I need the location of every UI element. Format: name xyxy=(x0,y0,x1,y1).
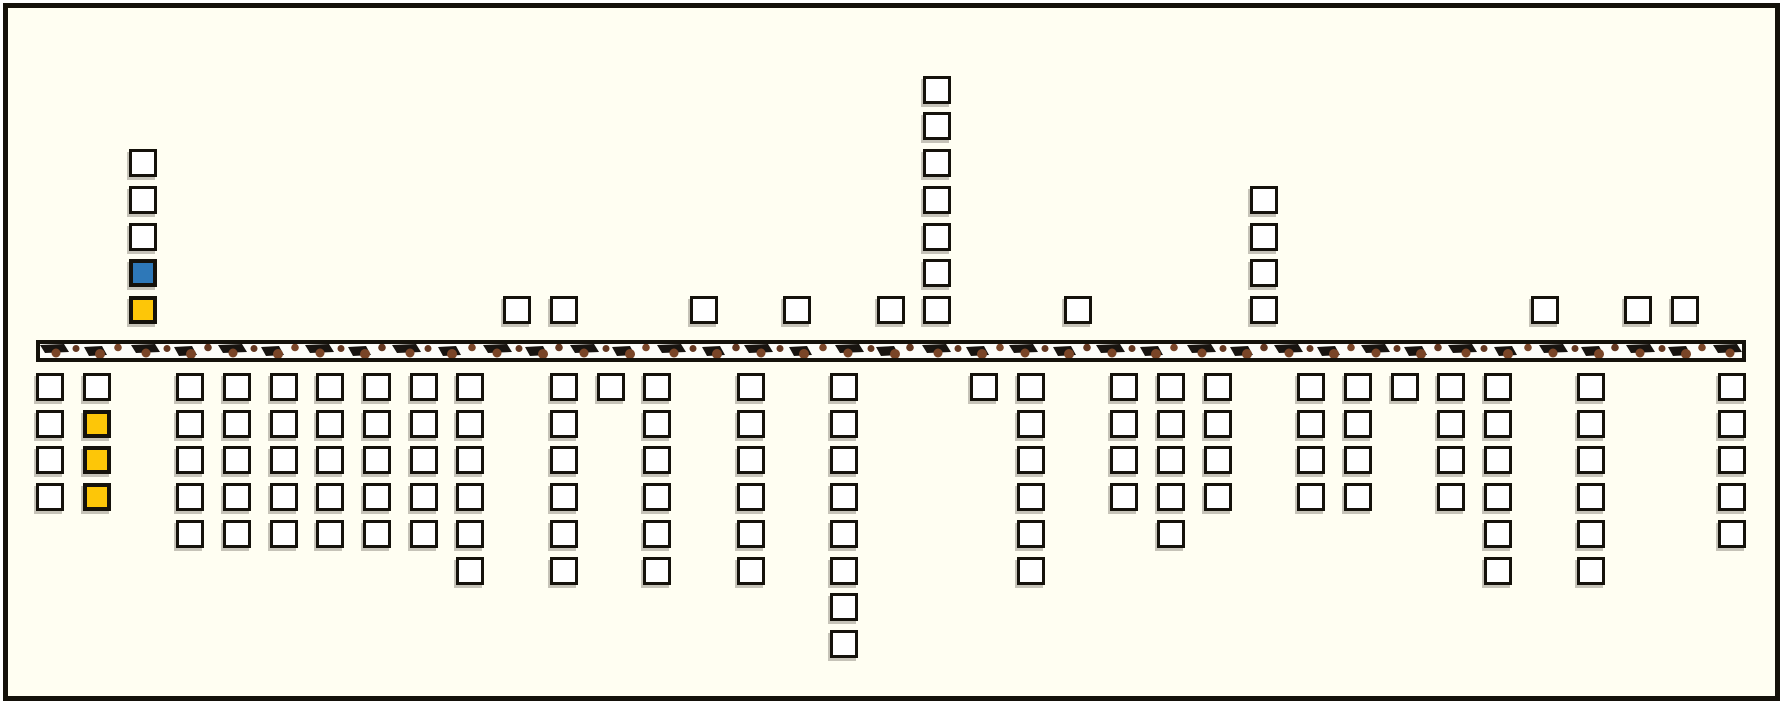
block-white[interactable] xyxy=(176,520,204,548)
block-white[interactable] xyxy=(1577,557,1605,585)
block-white[interactable] xyxy=(1250,259,1278,287)
block-white[interactable] xyxy=(923,259,951,287)
block-white[interactable] xyxy=(36,483,64,511)
block-white[interactable] xyxy=(1017,520,1045,548)
block-white[interactable] xyxy=(830,630,858,658)
block-white[interactable] xyxy=(737,446,765,474)
block-white[interactable] xyxy=(830,446,858,474)
block-white[interactable] xyxy=(36,410,64,438)
block-white[interactable] xyxy=(1437,373,1465,401)
block-white[interactable] xyxy=(270,520,298,548)
block-white[interactable] xyxy=(1017,410,1045,438)
game-board xyxy=(0,0,1783,704)
block-white[interactable] xyxy=(830,593,858,621)
block-white[interactable] xyxy=(737,557,765,585)
block-white[interactable] xyxy=(550,410,578,438)
block-white[interactable] xyxy=(1204,446,1232,474)
block-white[interactable] xyxy=(923,149,951,177)
block-white[interactable] xyxy=(456,410,484,438)
block-white[interactable] xyxy=(176,483,204,511)
block-white[interactable] xyxy=(643,483,671,511)
block-white[interactable] xyxy=(737,410,765,438)
block-white[interactable] xyxy=(830,410,858,438)
block-white[interactable] xyxy=(1671,296,1699,324)
block-white[interactable] xyxy=(1577,446,1605,474)
block-white[interactable] xyxy=(550,373,578,401)
block-white[interactable] xyxy=(550,446,578,474)
block-white[interactable] xyxy=(129,149,157,177)
block-white[interactable] xyxy=(363,373,391,401)
block-white[interactable] xyxy=(1718,520,1746,548)
block-white[interactable] xyxy=(36,446,64,474)
block-white[interactable] xyxy=(456,520,484,548)
block-white[interactable] xyxy=(270,446,298,474)
block-white[interactable] xyxy=(270,410,298,438)
block-yellow[interactable] xyxy=(129,296,157,324)
block-white[interactable] xyxy=(643,520,671,548)
block-white[interactable] xyxy=(1484,446,1512,474)
block-white[interactable] xyxy=(923,223,951,251)
block-white[interactable] xyxy=(737,373,765,401)
block-white[interactable] xyxy=(1110,373,1138,401)
block-white[interactable] xyxy=(737,520,765,548)
block-white[interactable] xyxy=(970,373,998,401)
block-white[interactable] xyxy=(1484,520,1512,548)
block-white[interactable] xyxy=(1297,483,1325,511)
block-white[interactable] xyxy=(456,557,484,585)
block-white[interactable] xyxy=(316,446,344,474)
block-white[interactable] xyxy=(1484,410,1512,438)
block-white[interactable] xyxy=(1110,483,1138,511)
block-white[interactable] xyxy=(830,557,858,585)
block-white[interactable] xyxy=(1250,223,1278,251)
block-white[interactable] xyxy=(1017,557,1045,585)
block-white[interactable] xyxy=(1157,373,1185,401)
block-white[interactable] xyxy=(176,446,204,474)
block-white[interactable] xyxy=(737,483,765,511)
block-white[interactable] xyxy=(1437,483,1465,511)
block-white[interactable] xyxy=(643,373,671,401)
block-white[interactable] xyxy=(1718,373,1746,401)
block-white[interactable] xyxy=(1577,483,1605,511)
block-blue[interactable] xyxy=(129,259,157,287)
block-white[interactable] xyxy=(223,373,251,401)
block-white[interactable] xyxy=(550,296,578,324)
block-white[interactable] xyxy=(643,410,671,438)
block-white[interactable] xyxy=(1017,373,1045,401)
block-white[interactable] xyxy=(363,520,391,548)
block-white[interactable] xyxy=(1624,296,1652,324)
block-white[interactable] xyxy=(923,186,951,214)
block-white[interactable] xyxy=(643,446,671,474)
block-white[interactable] xyxy=(1064,296,1092,324)
block-white[interactable] xyxy=(1437,410,1465,438)
block-white[interactable] xyxy=(830,483,858,511)
block-white[interactable] xyxy=(410,483,438,511)
block-white[interactable] xyxy=(456,446,484,474)
block-white[interactable] xyxy=(1577,373,1605,401)
block-white[interactable] xyxy=(176,373,204,401)
block-white[interactable] xyxy=(830,373,858,401)
block-white[interactable] xyxy=(410,446,438,474)
block-white[interactable] xyxy=(550,483,578,511)
block-white[interactable] xyxy=(410,373,438,401)
block-white[interactable] xyxy=(270,483,298,511)
block-white[interactable] xyxy=(1110,410,1138,438)
block-white[interactable] xyxy=(410,410,438,438)
block-white[interactable] xyxy=(1484,483,1512,511)
block-white[interactable] xyxy=(456,483,484,511)
block-white[interactable] xyxy=(877,296,905,324)
block-white[interactable] xyxy=(176,410,204,438)
block-white[interactable] xyxy=(316,410,344,438)
block-white[interactable] xyxy=(1577,410,1605,438)
block-white[interactable] xyxy=(597,373,625,401)
block-white[interactable] xyxy=(316,483,344,511)
block-yellow[interactable] xyxy=(83,446,111,474)
block-white[interactable] xyxy=(1531,296,1559,324)
block-white[interactable] xyxy=(1718,410,1746,438)
block-white[interactable] xyxy=(1577,520,1605,548)
block-white[interactable] xyxy=(363,446,391,474)
block-white[interactable] xyxy=(1718,446,1746,474)
block-white[interactable] xyxy=(1437,446,1465,474)
block-white[interactable] xyxy=(1157,520,1185,548)
block-white[interactable] xyxy=(503,296,531,324)
block-white[interactable] xyxy=(1157,446,1185,474)
block-white[interactable] xyxy=(1297,446,1325,474)
block-white[interactable] xyxy=(643,557,671,585)
block-white[interactable] xyxy=(410,520,438,548)
block-white[interactable] xyxy=(1344,483,1372,511)
block-white[interactable] xyxy=(129,223,157,251)
block-white[interactable] xyxy=(550,520,578,548)
block-white[interactable] xyxy=(316,520,344,548)
block-white[interactable] xyxy=(1484,373,1512,401)
block-white[interactable] xyxy=(1718,483,1746,511)
block-white[interactable] xyxy=(1391,373,1419,401)
block-white[interactable] xyxy=(223,520,251,548)
block-white[interactable] xyxy=(1344,373,1372,401)
block-white[interactable] xyxy=(1017,446,1045,474)
block-white[interactable] xyxy=(223,483,251,511)
block-white[interactable] xyxy=(1110,446,1138,474)
block-white[interactable] xyxy=(1344,446,1372,474)
block-white[interactable] xyxy=(1204,483,1232,511)
block-white[interactable] xyxy=(830,520,858,548)
block-yellow[interactable] xyxy=(83,410,111,438)
block-white[interactable] xyxy=(1250,296,1278,324)
block-white[interactable] xyxy=(783,296,811,324)
block-white[interactable] xyxy=(363,410,391,438)
block-white[interactable] xyxy=(923,296,951,324)
block-white[interactable] xyxy=(83,373,111,401)
block-white[interactable] xyxy=(1204,373,1232,401)
block-white[interactable] xyxy=(1250,186,1278,214)
block-white[interactable] xyxy=(1297,410,1325,438)
block-white[interactable] xyxy=(36,373,64,401)
block-white[interactable] xyxy=(550,557,578,585)
block-white[interactable] xyxy=(1017,483,1045,511)
block-white[interactable] xyxy=(129,186,157,214)
block-white[interactable] xyxy=(690,296,718,324)
block-yellow[interactable] xyxy=(83,483,111,511)
block-white[interactable] xyxy=(1344,410,1372,438)
block-white[interactable] xyxy=(223,446,251,474)
block-white[interactable] xyxy=(316,373,344,401)
block-white[interactable] xyxy=(1157,410,1185,438)
block-white[interactable] xyxy=(456,373,484,401)
block-white[interactable] xyxy=(270,373,298,401)
block-white[interactable] xyxy=(1204,410,1232,438)
block-white[interactable] xyxy=(1297,373,1325,401)
block-white[interactable] xyxy=(923,76,951,104)
block-white[interactable] xyxy=(1484,557,1512,585)
block-white[interactable] xyxy=(223,410,251,438)
block-white[interactable] xyxy=(1157,483,1185,511)
block-white[interactable] xyxy=(923,112,951,140)
block-white[interactable] xyxy=(363,483,391,511)
